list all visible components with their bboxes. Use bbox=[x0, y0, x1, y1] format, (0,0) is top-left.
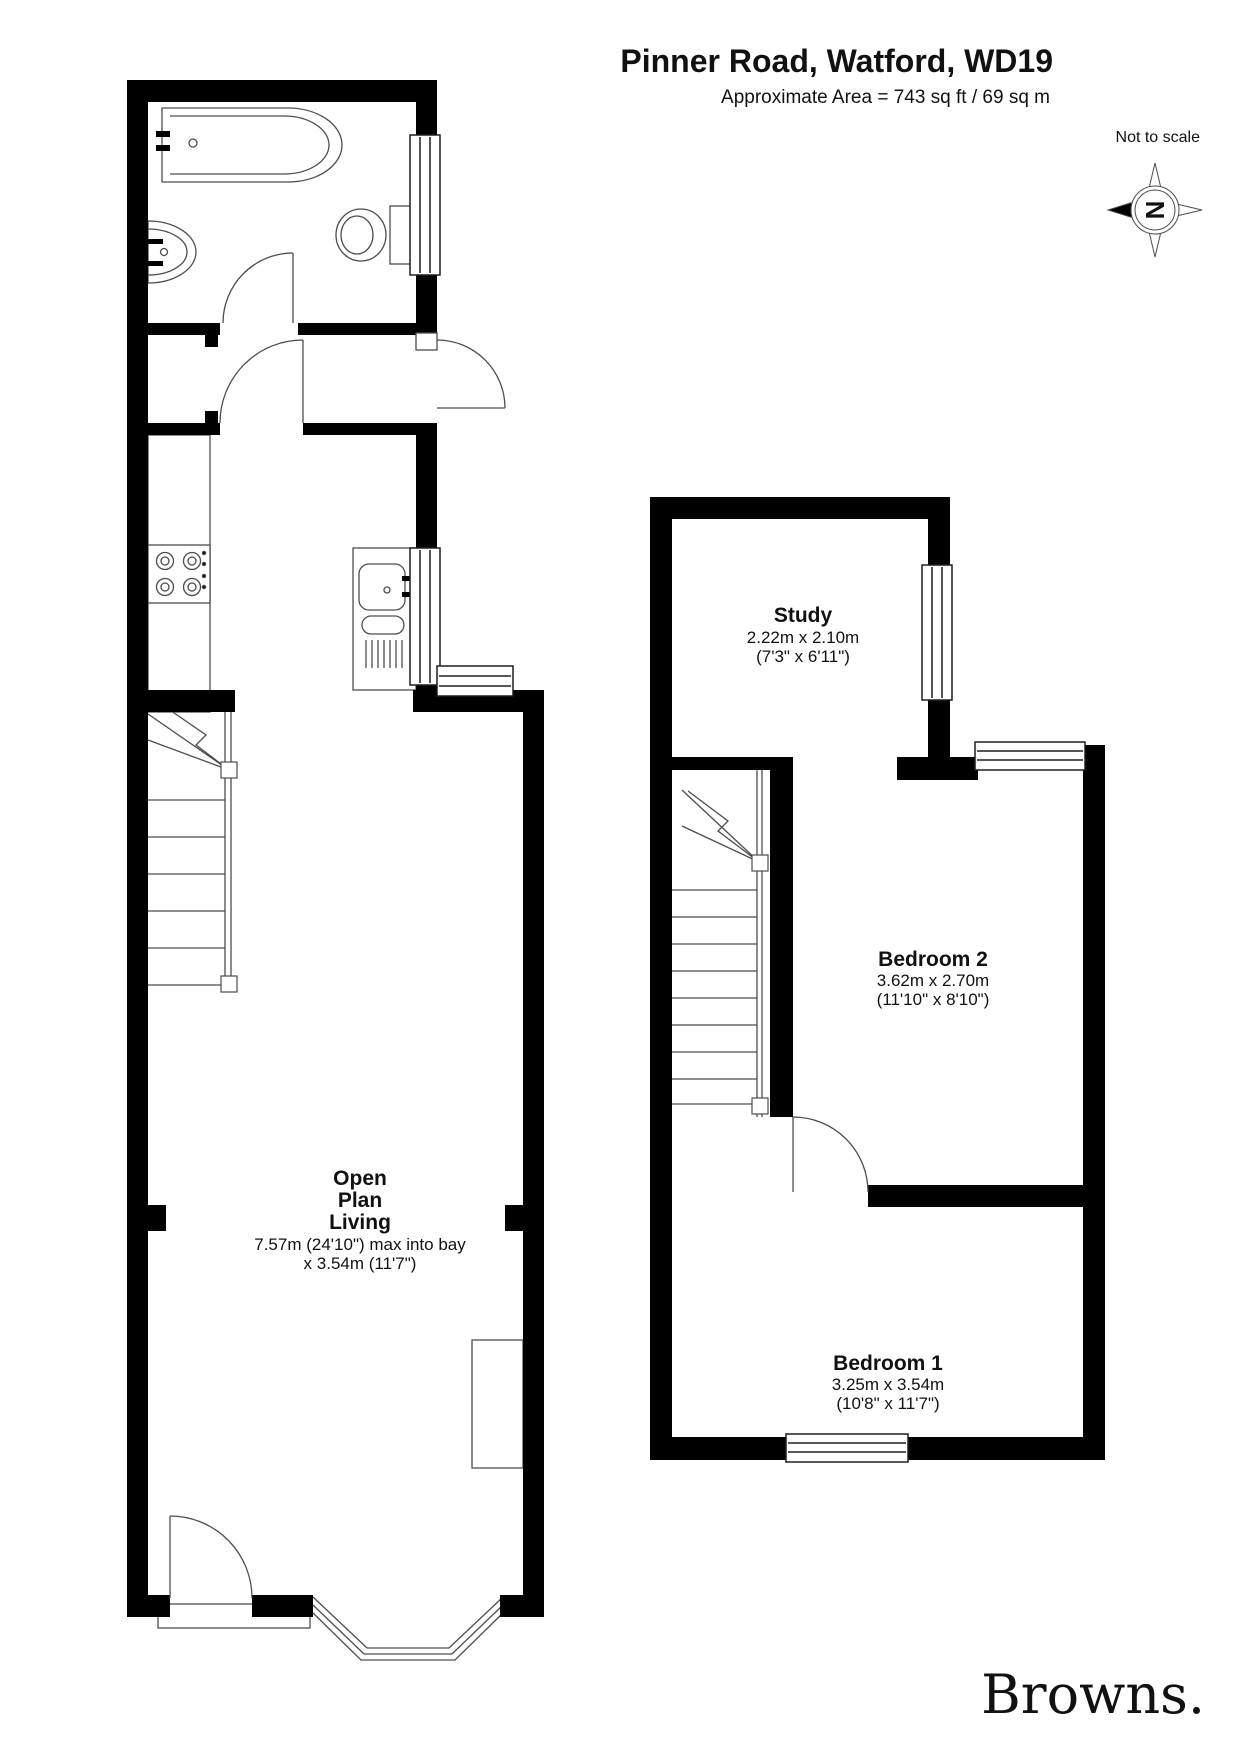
floorplan-canvas: Pinner Road, Watford, WD19 Approximate A… bbox=[0, 0, 1241, 1755]
study-window bbox=[922, 565, 952, 700]
compass-letter: N bbox=[1140, 201, 1170, 220]
bedroom1-name: Bedroom 1 bbox=[833, 1352, 943, 1375]
page-title: Pinner Road, Watford, WD19 bbox=[620, 43, 1053, 79]
bedroom2-door bbox=[793, 1117, 868, 1192]
ground-floor-fixtures bbox=[148, 108, 523, 1660]
room-labels: Open Plan Living 7.57m (24'10") max into… bbox=[254, 604, 989, 1413]
bay-window bbox=[313, 1597, 503, 1660]
study-dim-imperial: (7'3" x 6'11") bbox=[756, 647, 850, 666]
bedroom2-dim-imperial: (11'10" x 8'10") bbox=[877, 990, 990, 1009]
living-room-side-window bbox=[437, 666, 513, 696]
bedroom1-dim-metric: 3.25m x 3.54m bbox=[832, 1375, 944, 1394]
bathroom-door bbox=[223, 253, 293, 323]
bathroom-basin bbox=[148, 221, 196, 283]
bedroom2-name: Bedroom 2 bbox=[878, 948, 988, 971]
living-room-furniture bbox=[472, 1340, 523, 1468]
living-name-1: Open bbox=[333, 1167, 387, 1190]
study-name: Study bbox=[774, 604, 833, 627]
study-dim-metric: 2.22m x 2.10m bbox=[747, 628, 859, 647]
bedroom1-dim-imperial: (10'8" x 11'7") bbox=[836, 1394, 939, 1413]
bedroom2-dim-metric: 3.62m x 2.70m bbox=[877, 971, 989, 990]
toilet bbox=[336, 206, 413, 264]
living-dim-1: 7.57m (24'10") max into bay bbox=[254, 1235, 466, 1254]
brand-logo: Browns. bbox=[981, 1663, 1205, 1726]
living-dim-2: x 3.54m (11'7") bbox=[304, 1254, 417, 1273]
front-door bbox=[170, 1516, 252, 1598]
room-label-open-plan-living: Open Plan Living 7.57m (24'10") max into… bbox=[254, 1167, 466, 1273]
side-door bbox=[416, 333, 505, 408]
room-label-bedroom1: Bedroom 1 3.25m x 3.54m (10'8" x 11'7") bbox=[832, 1352, 944, 1413]
floorplan-page: Pinner Road, Watford, WD19 Approximate A… bbox=[0, 0, 1241, 1755]
staircase-ground bbox=[148, 706, 237, 992]
bathtub bbox=[156, 108, 342, 182]
room-label-study: Study 2.22m x 2.10m (7'3" x 6'11") bbox=[747, 604, 859, 666]
bedroom1-window bbox=[786, 1434, 908, 1462]
header: Pinner Road, Watford, WD19 Approximate A… bbox=[620, 43, 1200, 146]
scale-note: Not to scale bbox=[1116, 129, 1201, 146]
room-label-bedroom2: Bedroom 2 3.62m x 2.70m (11'10" x 8'10") bbox=[877, 948, 990, 1009]
kitchen-window bbox=[410, 548, 440, 685]
hall-kitchen-door bbox=[220, 340, 303, 423]
bathroom-window bbox=[410, 135, 440, 275]
living-name-3: Living bbox=[329, 1211, 391, 1234]
first-floor-fixtures bbox=[672, 770, 768, 1117]
bedroom2-window bbox=[975, 742, 1085, 770]
kitchen-counter-hob bbox=[148, 435, 210, 712]
first-floor-windows bbox=[786, 565, 1085, 1462]
staircase-first bbox=[672, 770, 768, 1117]
ground-floor-doors bbox=[170, 253, 505, 1598]
compass-icon: N bbox=[1108, 163, 1202, 257]
living-name-2: Plan bbox=[338, 1189, 382, 1212]
ground-floor-windows bbox=[410, 135, 513, 696]
kitchen-sink bbox=[353, 548, 416, 690]
area-line: Approximate Area = 743 sq ft / 69 sq m bbox=[721, 87, 1050, 108]
first-floor-doors bbox=[793, 1117, 868, 1192]
